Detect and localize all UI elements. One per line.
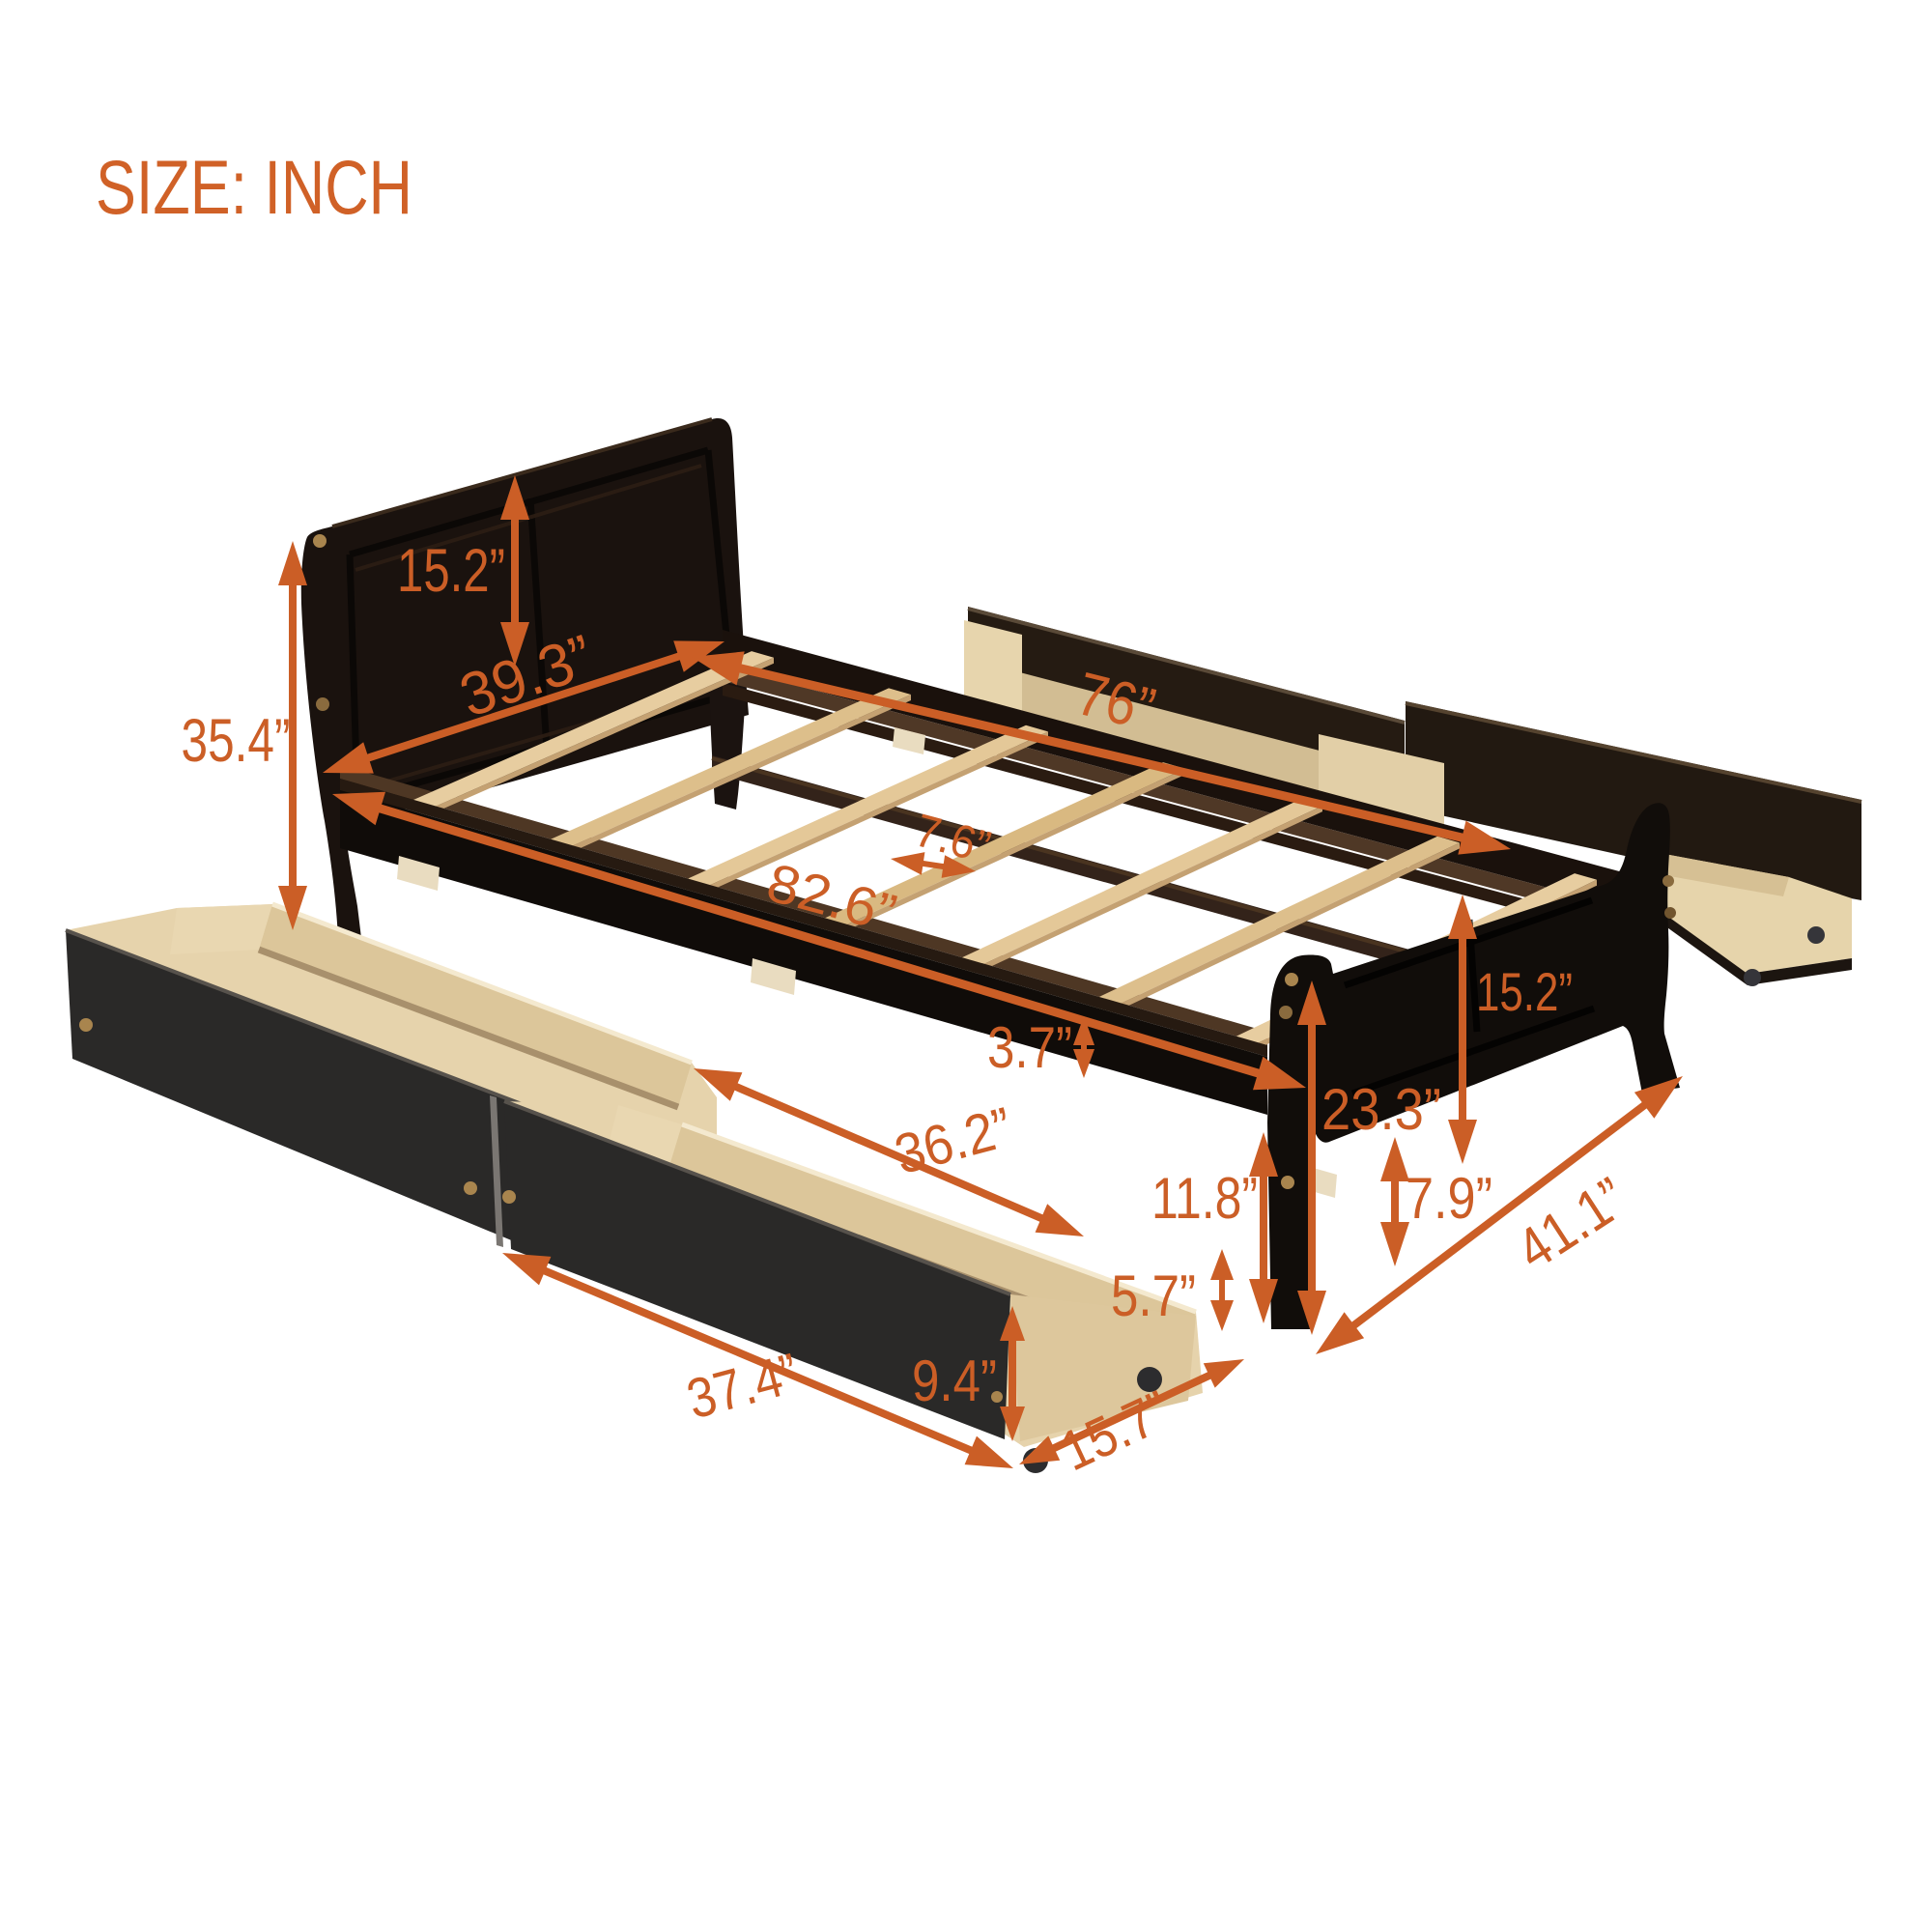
svg-text:SIZE: INCH: SIZE: INCH [96, 144, 412, 230]
svg-text:7.9”: 7.9” [1406, 1166, 1492, 1231]
svg-text:15.2”: 15.2” [397, 537, 505, 605]
svg-text:11.8”: 11.8” [1151, 1166, 1258, 1231]
svg-text:35.4”: 35.4” [182, 707, 291, 775]
svg-text:3.7”: 3.7” [987, 1015, 1072, 1080]
svg-text:9.4”: 9.4” [912, 1349, 997, 1413]
svg-text:5.7”: 5.7” [1111, 1264, 1196, 1328]
svg-text:15.2”: 15.2” [1476, 961, 1573, 1022]
svg-text:23.3”: 23.3” [1321, 1077, 1441, 1142]
